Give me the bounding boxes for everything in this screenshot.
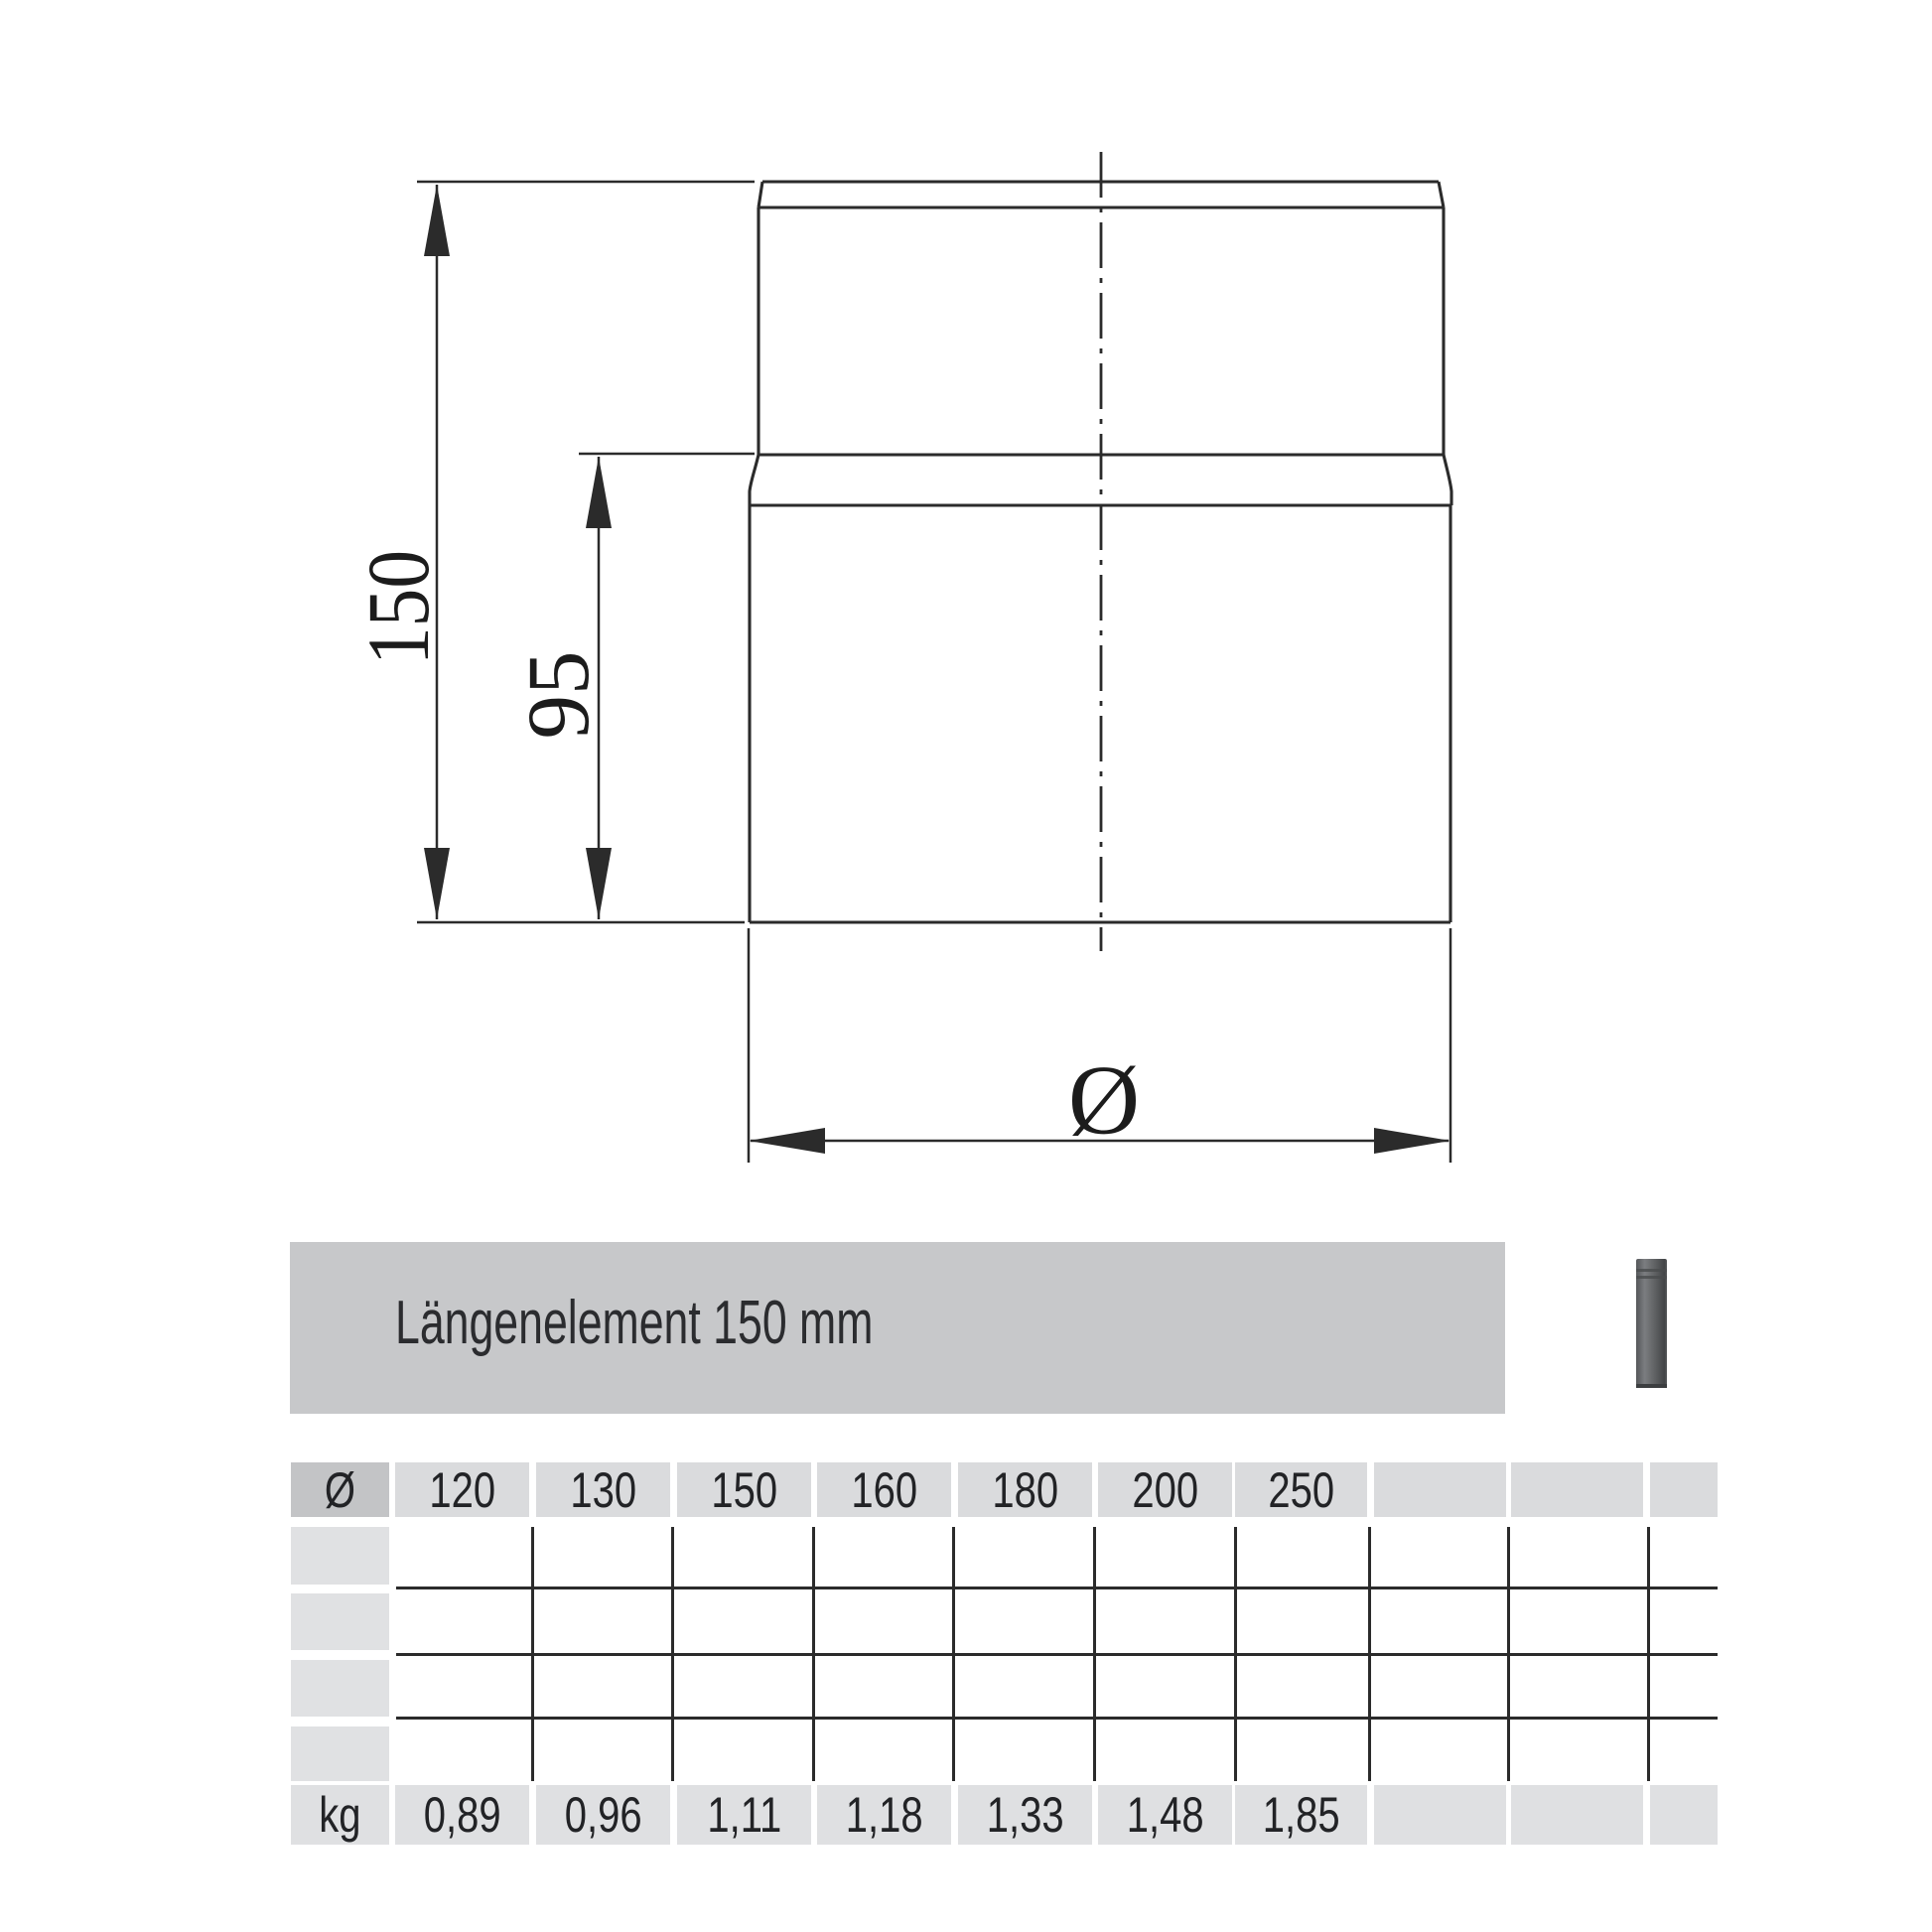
svg-text:Ø: Ø bbox=[1068, 1044, 1140, 1155]
svg-text:150: 150 bbox=[350, 550, 448, 665]
svg-text:95: 95 bbox=[510, 651, 608, 740]
